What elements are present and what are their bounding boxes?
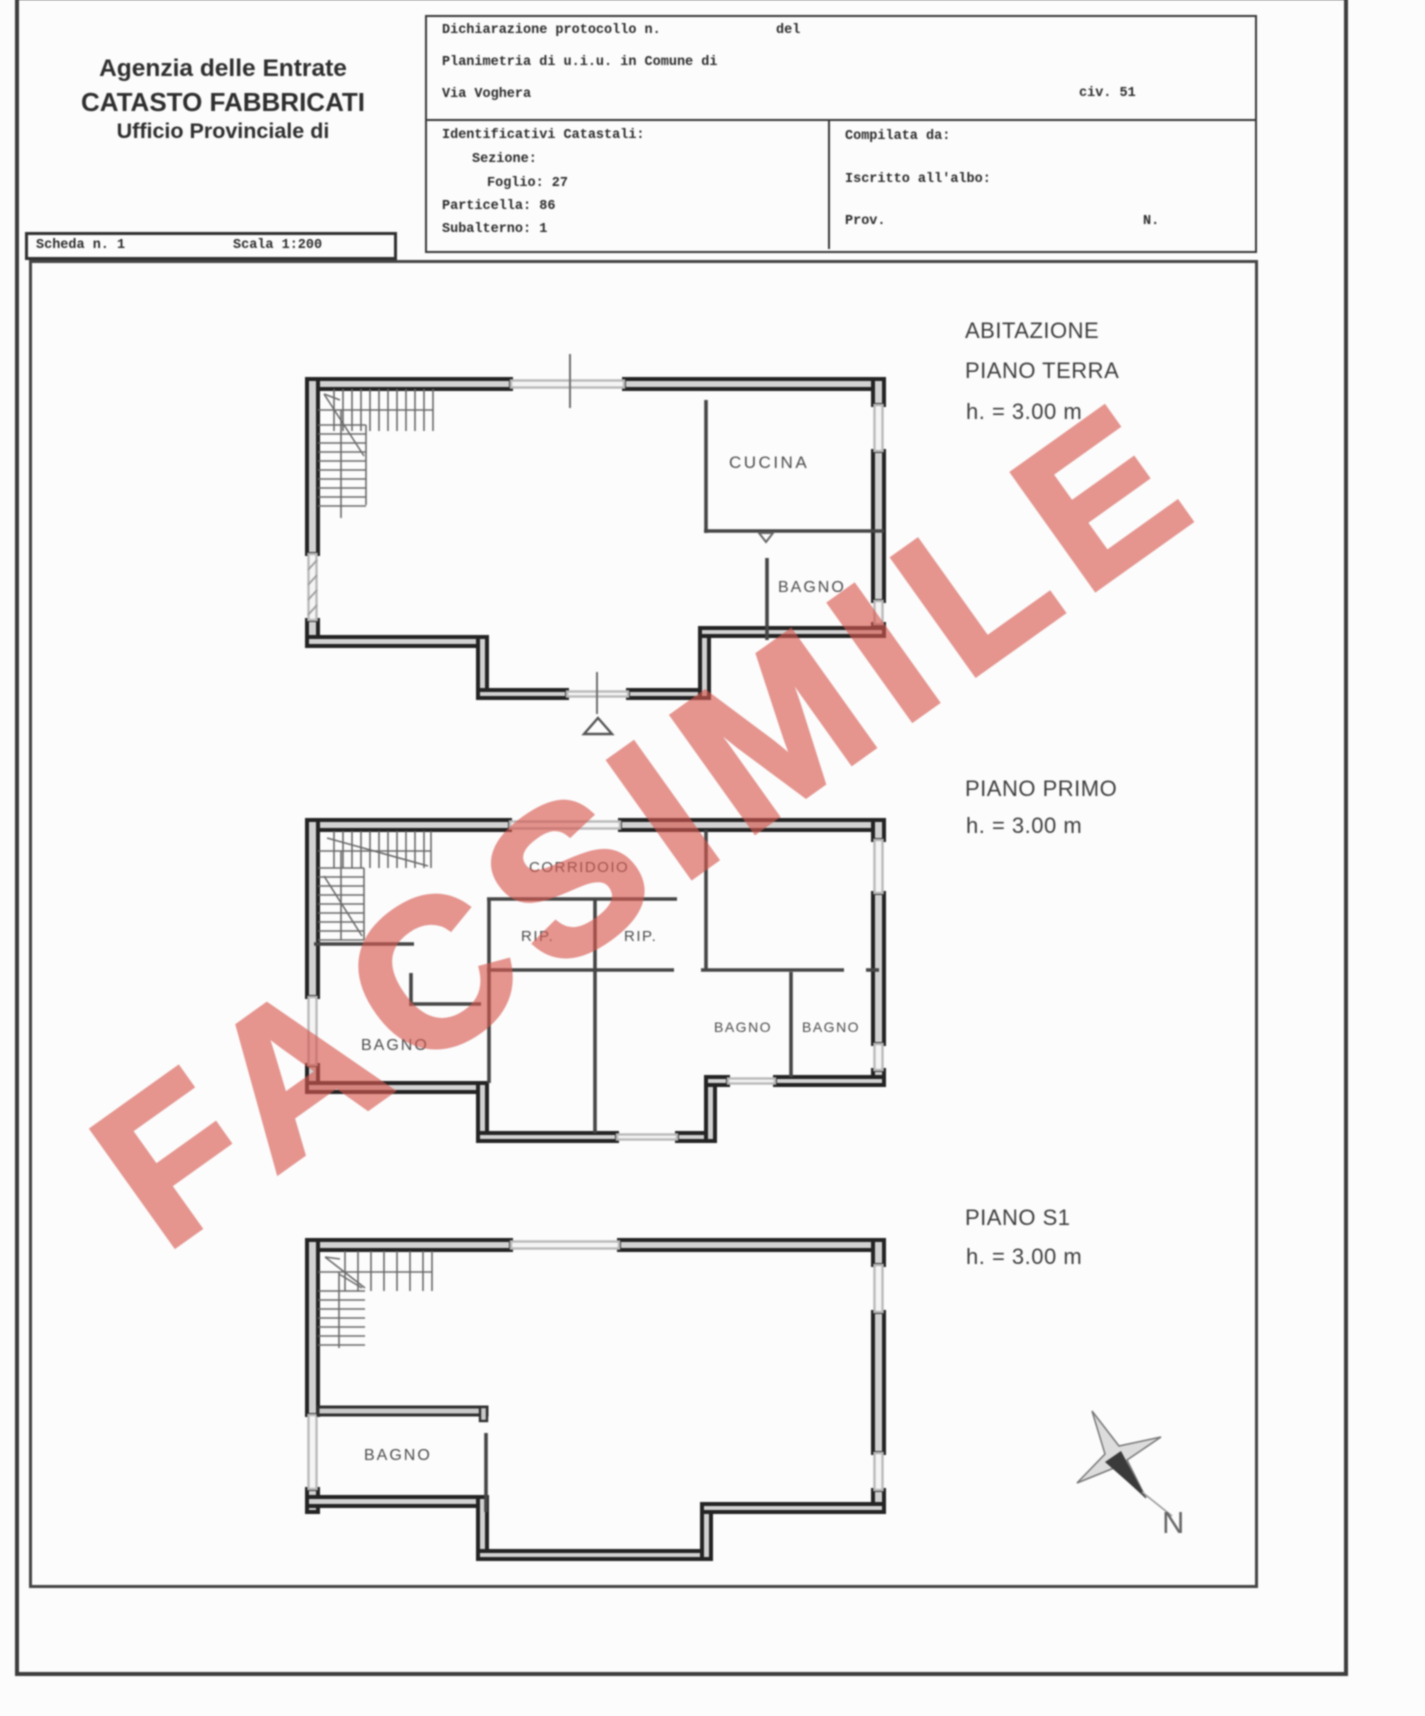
svg-text:BAGNO: BAGNO [364, 1447, 432, 1464]
svg-text:BAGNO: BAGNO [802, 1019, 860, 1035]
svg-text:BAGNO: BAGNO [714, 1019, 772, 1035]
svg-text:N: N [1162, 1505, 1184, 1540]
svg-text:CUCINA: CUCINA [729, 453, 809, 472]
